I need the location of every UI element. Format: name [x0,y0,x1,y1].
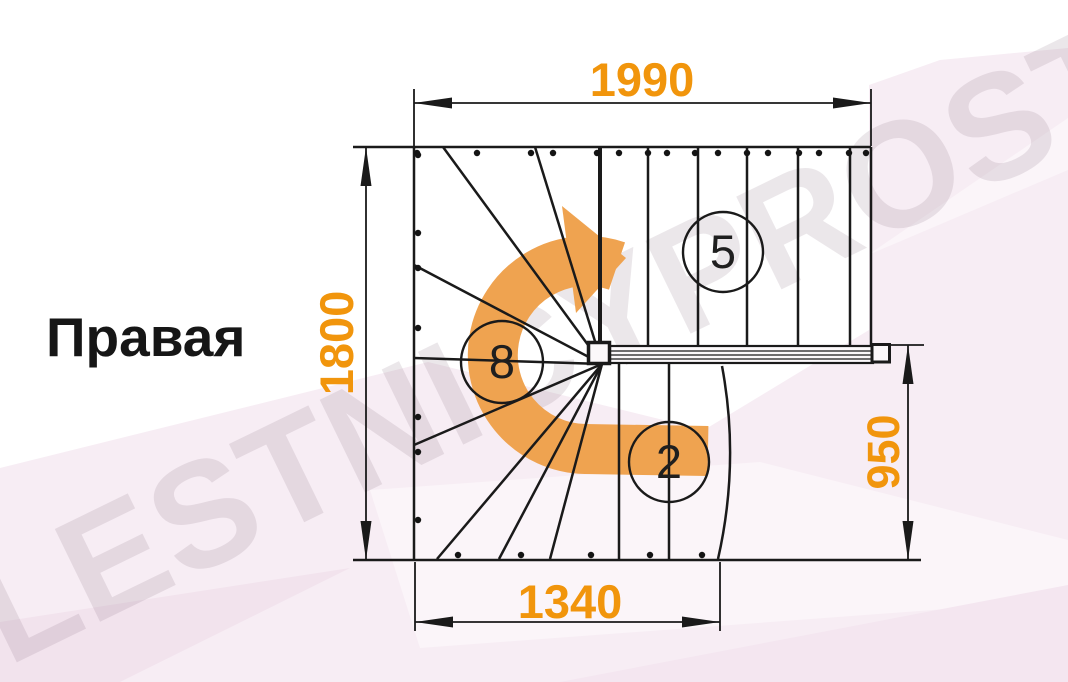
dimension-label-right: 950 [861,362,907,542]
dimension-label-bottom: 1340 [420,574,720,629]
stair-plan-diagram: LESTNICYPROSTO.RU [0,0,1068,682]
dim-arrow-down [361,521,372,560]
newel-post-right [872,345,890,363]
step-count-flight-5: 5 [682,211,764,293]
step-count-flight-2: 2 [628,421,710,503]
dimension-label-top: 1990 [492,52,792,107]
flight-2-curved-edge [718,366,730,559]
dim-arrow-left [414,98,452,109]
dim-arrow-up [361,147,372,186]
landing-beam [589,343,890,364]
dim-arrow-right [833,98,871,109]
rotation-arrow-head [562,206,626,313]
newel-post-left [589,343,610,364]
diagram-title: Правая [46,305,245,369]
dimension-label-left: 1800 [313,233,361,453]
step-count-winder: 8 [461,321,543,403]
